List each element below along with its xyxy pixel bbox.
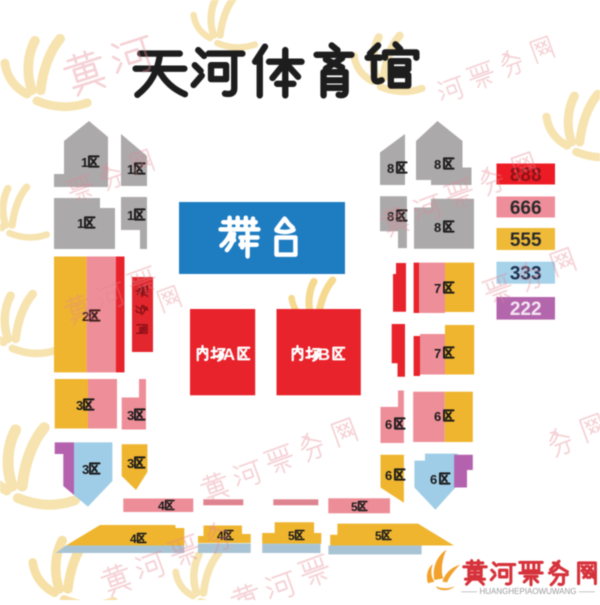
svg-text:B: B xyxy=(318,345,330,364)
svg-text:6: 6 xyxy=(385,468,392,483)
svg-text:666: 666 xyxy=(510,198,542,219)
svg-text:3: 3 xyxy=(76,398,83,413)
svg-text:6: 6 xyxy=(434,409,441,424)
svg-text:5: 5 xyxy=(288,529,295,543)
svg-text:222: 222 xyxy=(510,299,542,320)
svg-text:3: 3 xyxy=(82,462,89,477)
svg-text:4: 4 xyxy=(158,499,165,513)
svg-text:1: 1 xyxy=(77,216,84,231)
svg-text:4: 4 xyxy=(130,532,137,546)
svg-text:6: 6 xyxy=(430,472,437,487)
svg-text:1: 1 xyxy=(81,155,88,170)
svg-text:5: 5 xyxy=(351,500,358,514)
svg-text:8: 8 xyxy=(434,220,441,235)
svg-text:5: 5 xyxy=(375,529,382,543)
svg-text:6: 6 xyxy=(385,417,392,432)
svg-text:7: 7 xyxy=(434,281,441,296)
svg-text:3: 3 xyxy=(127,408,134,423)
svg-text:8: 8 xyxy=(434,157,441,172)
svg-text:8: 8 xyxy=(387,161,394,176)
svg-text:3: 3 xyxy=(127,456,134,471)
svg-text:1: 1 xyxy=(127,208,134,223)
svg-text:A: A xyxy=(223,345,235,364)
svg-text:—— HUANGHEPIAOWUWANG ——: —— HUANGHEPIAOWUWANG —— xyxy=(461,587,594,596)
svg-text:7: 7 xyxy=(434,346,441,361)
svg-text:555: 555 xyxy=(510,230,542,251)
